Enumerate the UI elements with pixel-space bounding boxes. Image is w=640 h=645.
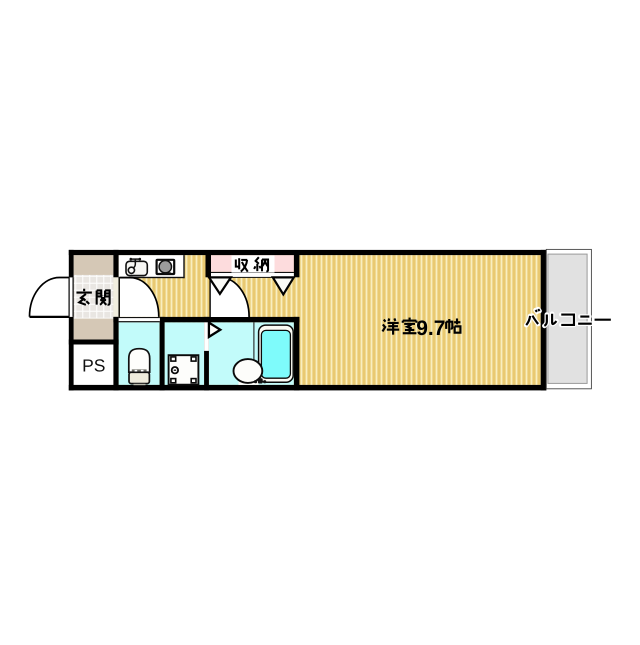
svg-text:9.7: 9.7 xyxy=(416,317,445,340)
svg-text:PS: PS xyxy=(82,356,105,376)
